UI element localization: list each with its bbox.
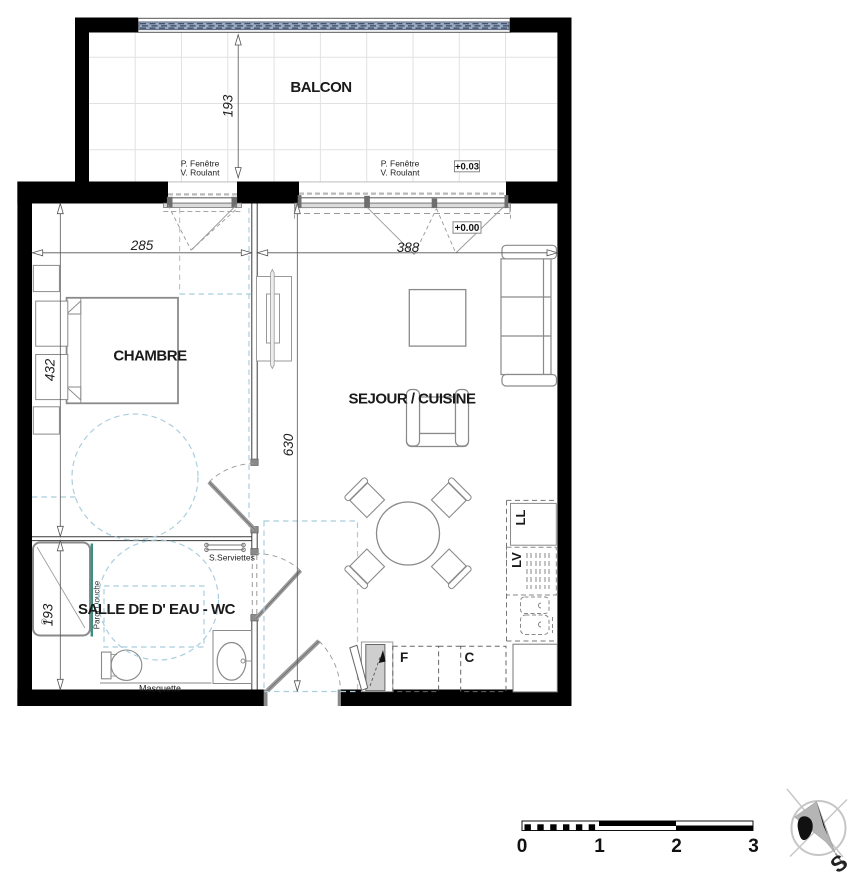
svg-text:193: 193 [221,94,236,117]
svg-text:193: 193 [41,603,56,626]
svg-text:LL: LL [513,510,528,526]
svg-text:SALLE DE D' EAU - WC: SALLE DE D' EAU - WC [78,601,236,618]
svg-text:SEJOUR / CUISINE: SEJOUR / CUISINE [348,391,476,408]
svg-text:285: 285 [130,238,154,253]
svg-text:Masquette: Masquette [139,684,181,694]
svg-text:432: 432 [43,358,58,381]
svg-text:V. Roulant: V. Roulant [381,168,421,178]
svg-text:1: 1 [594,836,605,857]
svg-text:BALCON: BALCON [290,79,351,96]
svg-text:+0.00: +0.00 [455,223,480,234]
svg-text:S.Serviettes: S.Serviettes [209,553,255,563]
svg-text:388: 388 [397,240,420,255]
svg-text:C: C [465,650,475,665]
svg-text:3: 3 [748,836,759,857]
svg-text:630: 630 [281,433,296,456]
svg-text:LV: LV [509,552,524,568]
svg-text:F: F [400,650,408,665]
svg-text:CHAMBRE: CHAMBRE [113,348,187,365]
svg-text:+0.03: +0.03 [455,162,479,173]
svg-text:V. Roulant: V. Roulant [181,168,221,178]
svg-text:2: 2 [671,836,682,857]
svg-text:0: 0 [517,836,528,857]
